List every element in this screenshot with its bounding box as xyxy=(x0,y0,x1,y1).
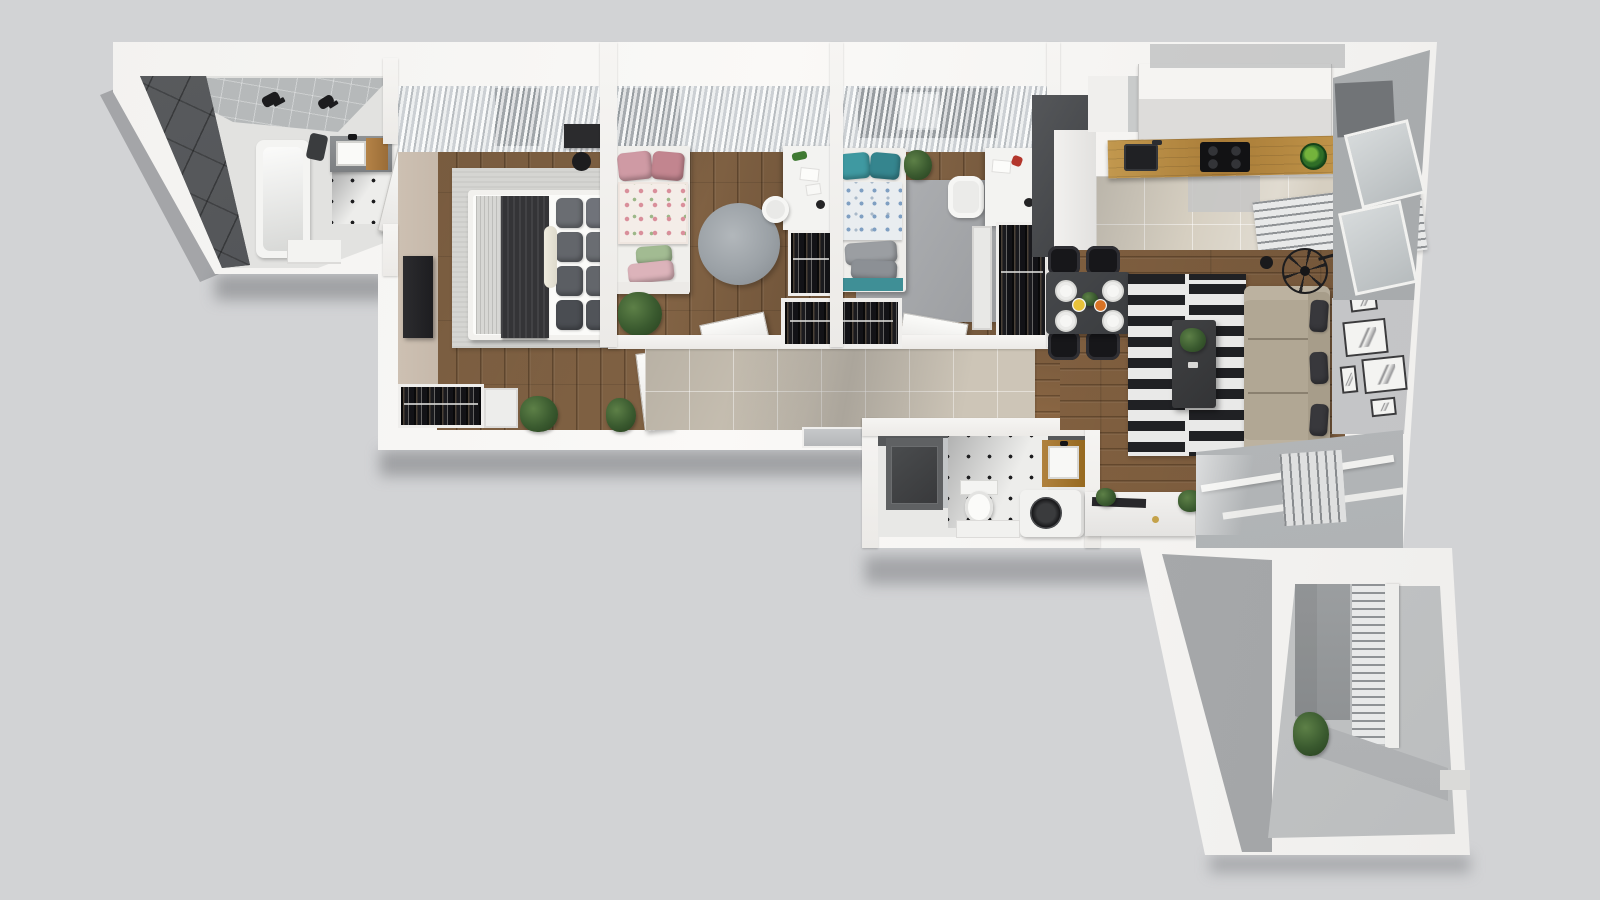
bathroom-bench xyxy=(287,240,341,264)
cooktop xyxy=(1200,142,1250,172)
balcony-concrete-panel xyxy=(1295,584,1352,720)
vanity-sink xyxy=(336,141,366,166)
dining-plate xyxy=(1102,280,1124,302)
kids1-footboard xyxy=(617,282,689,294)
bedroom-plant xyxy=(606,398,636,432)
bed-folded-sheet xyxy=(476,196,502,334)
window-light-streak xyxy=(1196,455,1266,535)
balcony-plant xyxy=(1293,712,1329,756)
kitchen-sink xyxy=(1124,144,1158,171)
coffee-table-remote xyxy=(1188,362,1198,368)
sofa-pillow-dark xyxy=(1309,299,1329,332)
washing-machine-door xyxy=(1030,497,1062,529)
bath2-shower-tray xyxy=(891,446,938,504)
wall-kids1-kids2 xyxy=(830,42,843,347)
dining-plate xyxy=(1102,310,1124,332)
kids1-wardrobe xyxy=(788,230,834,296)
sofa-pillow-dark xyxy=(1309,352,1329,385)
toilet-bowl xyxy=(965,491,993,523)
bed-dark-throw xyxy=(501,196,549,338)
wall-lamp xyxy=(1260,256,1273,269)
balcony-window-frame xyxy=(1385,584,1399,748)
bedroom-plant xyxy=(520,396,558,432)
kitchen-wall-column xyxy=(1054,130,1096,257)
living-radiator xyxy=(1280,450,1347,526)
kitchen-top-wall-shade xyxy=(1150,44,1345,68)
floor-plan-render xyxy=(0,0,1600,900)
dining-dish-yellow xyxy=(1072,298,1086,312)
ground-shadow xyxy=(1210,855,1470,873)
bath2-sink xyxy=(1048,446,1079,479)
sofa-seat-seam xyxy=(1248,392,1308,394)
kitchen-top-box xyxy=(1088,76,1140,132)
dining-chair xyxy=(1086,330,1120,360)
coffee-table-plant xyxy=(1180,328,1206,352)
sideboard-plant xyxy=(1096,488,1116,506)
bed-pillow-dark xyxy=(556,300,583,330)
kids2-pattern-blanket xyxy=(840,182,902,240)
kids1-desk-lamp xyxy=(816,200,825,209)
gallery-frame xyxy=(1361,355,1407,394)
bed-pillow xyxy=(556,266,583,296)
kitchen-hood xyxy=(1188,176,1260,212)
bedroom-dresser xyxy=(484,388,518,428)
fruit-bowl xyxy=(1300,143,1327,170)
bath2-low-cabinet xyxy=(956,520,1020,538)
bed-bolster xyxy=(544,226,557,288)
gallery-frame xyxy=(1340,365,1359,394)
bath2-faucet xyxy=(1060,441,1068,446)
dining-chair xyxy=(1048,330,1080,360)
kids1-floral-blanket xyxy=(618,182,688,244)
wall-bathroom-bedroom xyxy=(383,58,398,144)
kids2-pillow-teal xyxy=(839,152,871,181)
kids2-pillow-teal xyxy=(869,152,901,181)
sofa-seat-seam xyxy=(1248,338,1308,340)
ground-shadow xyxy=(215,274,390,300)
sideboard-gold-lamp xyxy=(1152,516,1159,523)
kids2-footband xyxy=(841,278,903,291)
gallery-frame xyxy=(1342,318,1388,357)
kitchen-upper-cabinets xyxy=(1138,64,1332,140)
bedroom-wardrobe xyxy=(398,384,484,428)
gallery-frame xyxy=(1370,397,1397,418)
kids1-desk-paper xyxy=(799,167,819,182)
wall-bathroom-bedroom xyxy=(383,224,398,276)
kids2-drawer-unit xyxy=(972,226,992,330)
kids1-desk-paper xyxy=(805,183,821,196)
kids1-pillow-pink xyxy=(651,151,685,182)
kitchen-faucet xyxy=(1152,140,1162,145)
kids2-desk-paper xyxy=(991,159,1011,174)
kids1-sheer-curtains xyxy=(608,86,830,152)
bathtub-basin xyxy=(263,147,303,251)
balcony-step xyxy=(1440,770,1470,790)
bed-pillow xyxy=(556,198,583,228)
bed-pillow xyxy=(556,232,583,262)
kids1-stool xyxy=(762,196,789,223)
dining-plate xyxy=(1055,310,1077,332)
kids2-plant xyxy=(904,150,932,180)
ground-shadow xyxy=(865,556,1157,584)
pendant-fan-lamp xyxy=(1282,248,1328,294)
kids2-sheer-curtains xyxy=(843,86,1047,152)
kids2-chair xyxy=(948,176,984,218)
ground-shadow xyxy=(380,450,875,476)
wall-bedroom-kids1 xyxy=(600,42,617,347)
vanity-faucet xyxy=(348,134,357,140)
sofa-pillow-dark xyxy=(1309,403,1329,436)
dressing-desk xyxy=(564,124,604,148)
dining-dish-orange xyxy=(1094,299,1107,312)
bath2-left-wall xyxy=(862,418,878,548)
dressing-stool xyxy=(572,152,591,171)
bedroom-tv-panel xyxy=(403,256,433,338)
kids1-pillow-pink xyxy=(617,150,654,181)
balcony-railing xyxy=(1352,584,1385,744)
kids1-plant xyxy=(618,292,662,336)
